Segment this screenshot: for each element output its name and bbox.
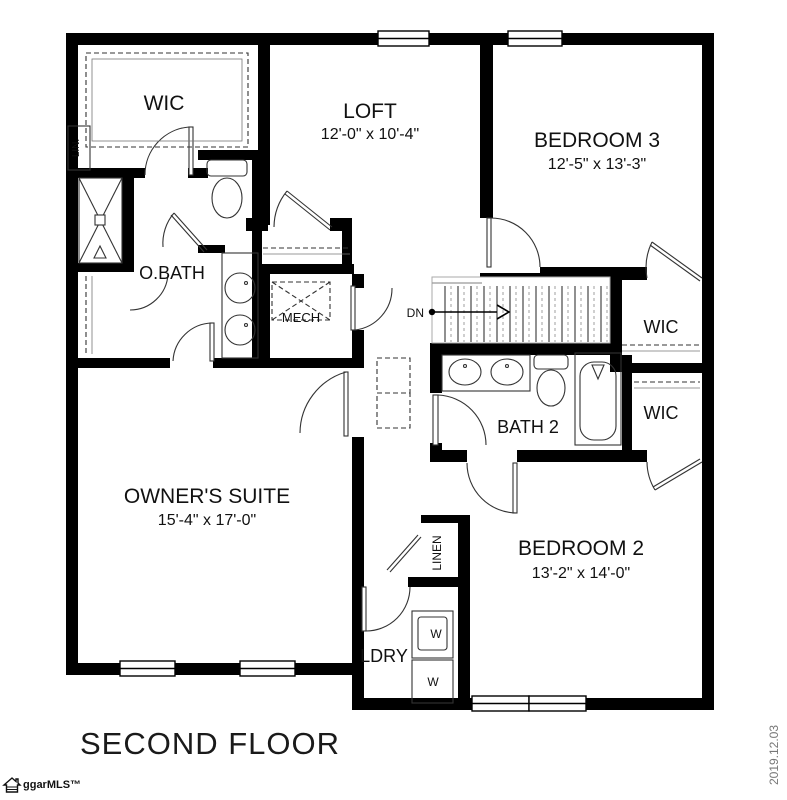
label-owners-suite-dims: 15'-4" x 17'-0": [158, 512, 256, 529]
label-obath: O.BATH: [139, 263, 205, 283]
floor-plan-page: WIC LIN. LOFT 12'-0" x 10'-4" BEDROOM 3 …: [0, 0, 787, 800]
label-wic-right-bottom: WIC: [644, 403, 679, 423]
label-bedroom2-dims: 13'-2" x 14'-0": [532, 565, 630, 582]
window: [508, 31, 562, 46]
label-bedroom3-dims: 12'-5" x 13'-3": [548, 156, 646, 173]
bath2-vanity-icon: [442, 355, 530, 391]
stairs: [429, 277, 610, 343]
page-title: SECOND FLOOR: [80, 726, 340, 762]
door-loft: [274, 191, 332, 230]
label-washer: W: [427, 675, 439, 689]
label-ldry: LDRY: [360, 646, 408, 666]
floor-plan: WIC LIN. LOFT 12'-0" x 10'-4" BEDROOM 3 …: [0, 0, 787, 800]
label-wic-top: WIC: [144, 92, 185, 115]
door-obath: [173, 323, 214, 361]
label-loft-dims: 12'-0" x 10'-4": [321, 126, 419, 143]
door-ldry: [362, 587, 410, 631]
label-mech: MECH: [282, 310, 320, 325]
door-wic-right-bottom: [647, 459, 702, 490]
plan-date: 2019.12.03: [729, 746, 787, 764]
label-loft: LOFT: [343, 100, 397, 123]
window: [120, 661, 175, 676]
label-wic-right-top: WIC: [644, 317, 679, 337]
door-wic-top: [145, 127, 193, 175]
mls-logo-text: ggarMLS™: [23, 779, 81, 791]
door-wic-right-top: [646, 242, 702, 281]
label-bedroom2: BEDROOM 2: [518, 537, 644, 560]
house-icon: [2, 776, 22, 794]
window: [472, 696, 586, 711]
label-dryer: W: [430, 627, 442, 641]
window: [378, 31, 429, 46]
label-dn: DN: [407, 306, 424, 320]
label-owners-suite: OWNER'S SUITE: [124, 485, 290, 508]
toilet-icon: [207, 160, 247, 218]
door-mech: [351, 286, 392, 330]
window: [240, 661, 295, 676]
door-bath2: [433, 395, 486, 445]
label-bedroom3: BEDROOM 3: [534, 129, 660, 152]
door-bedroom3: [487, 218, 540, 267]
bath2-toilet-icon: [534, 355, 568, 406]
mls-logo: ggarMLS™: [2, 776, 81, 794]
door-linen: [387, 535, 421, 572]
attic-access: [377, 358, 410, 428]
door-bedroom2: [467, 463, 517, 513]
shower-icon: [79, 178, 122, 263]
label-bath2: BATH 2: [497, 417, 559, 437]
label-lin: LIN.: [71, 139, 82, 157]
door-owners-suite: [300, 372, 348, 436]
label-linen: LINEN: [430, 535, 444, 570]
room-labels: WIC LIN. LOFT 12'-0" x 10'-4" BEDROOM 3 …: [71, 92, 679, 689]
